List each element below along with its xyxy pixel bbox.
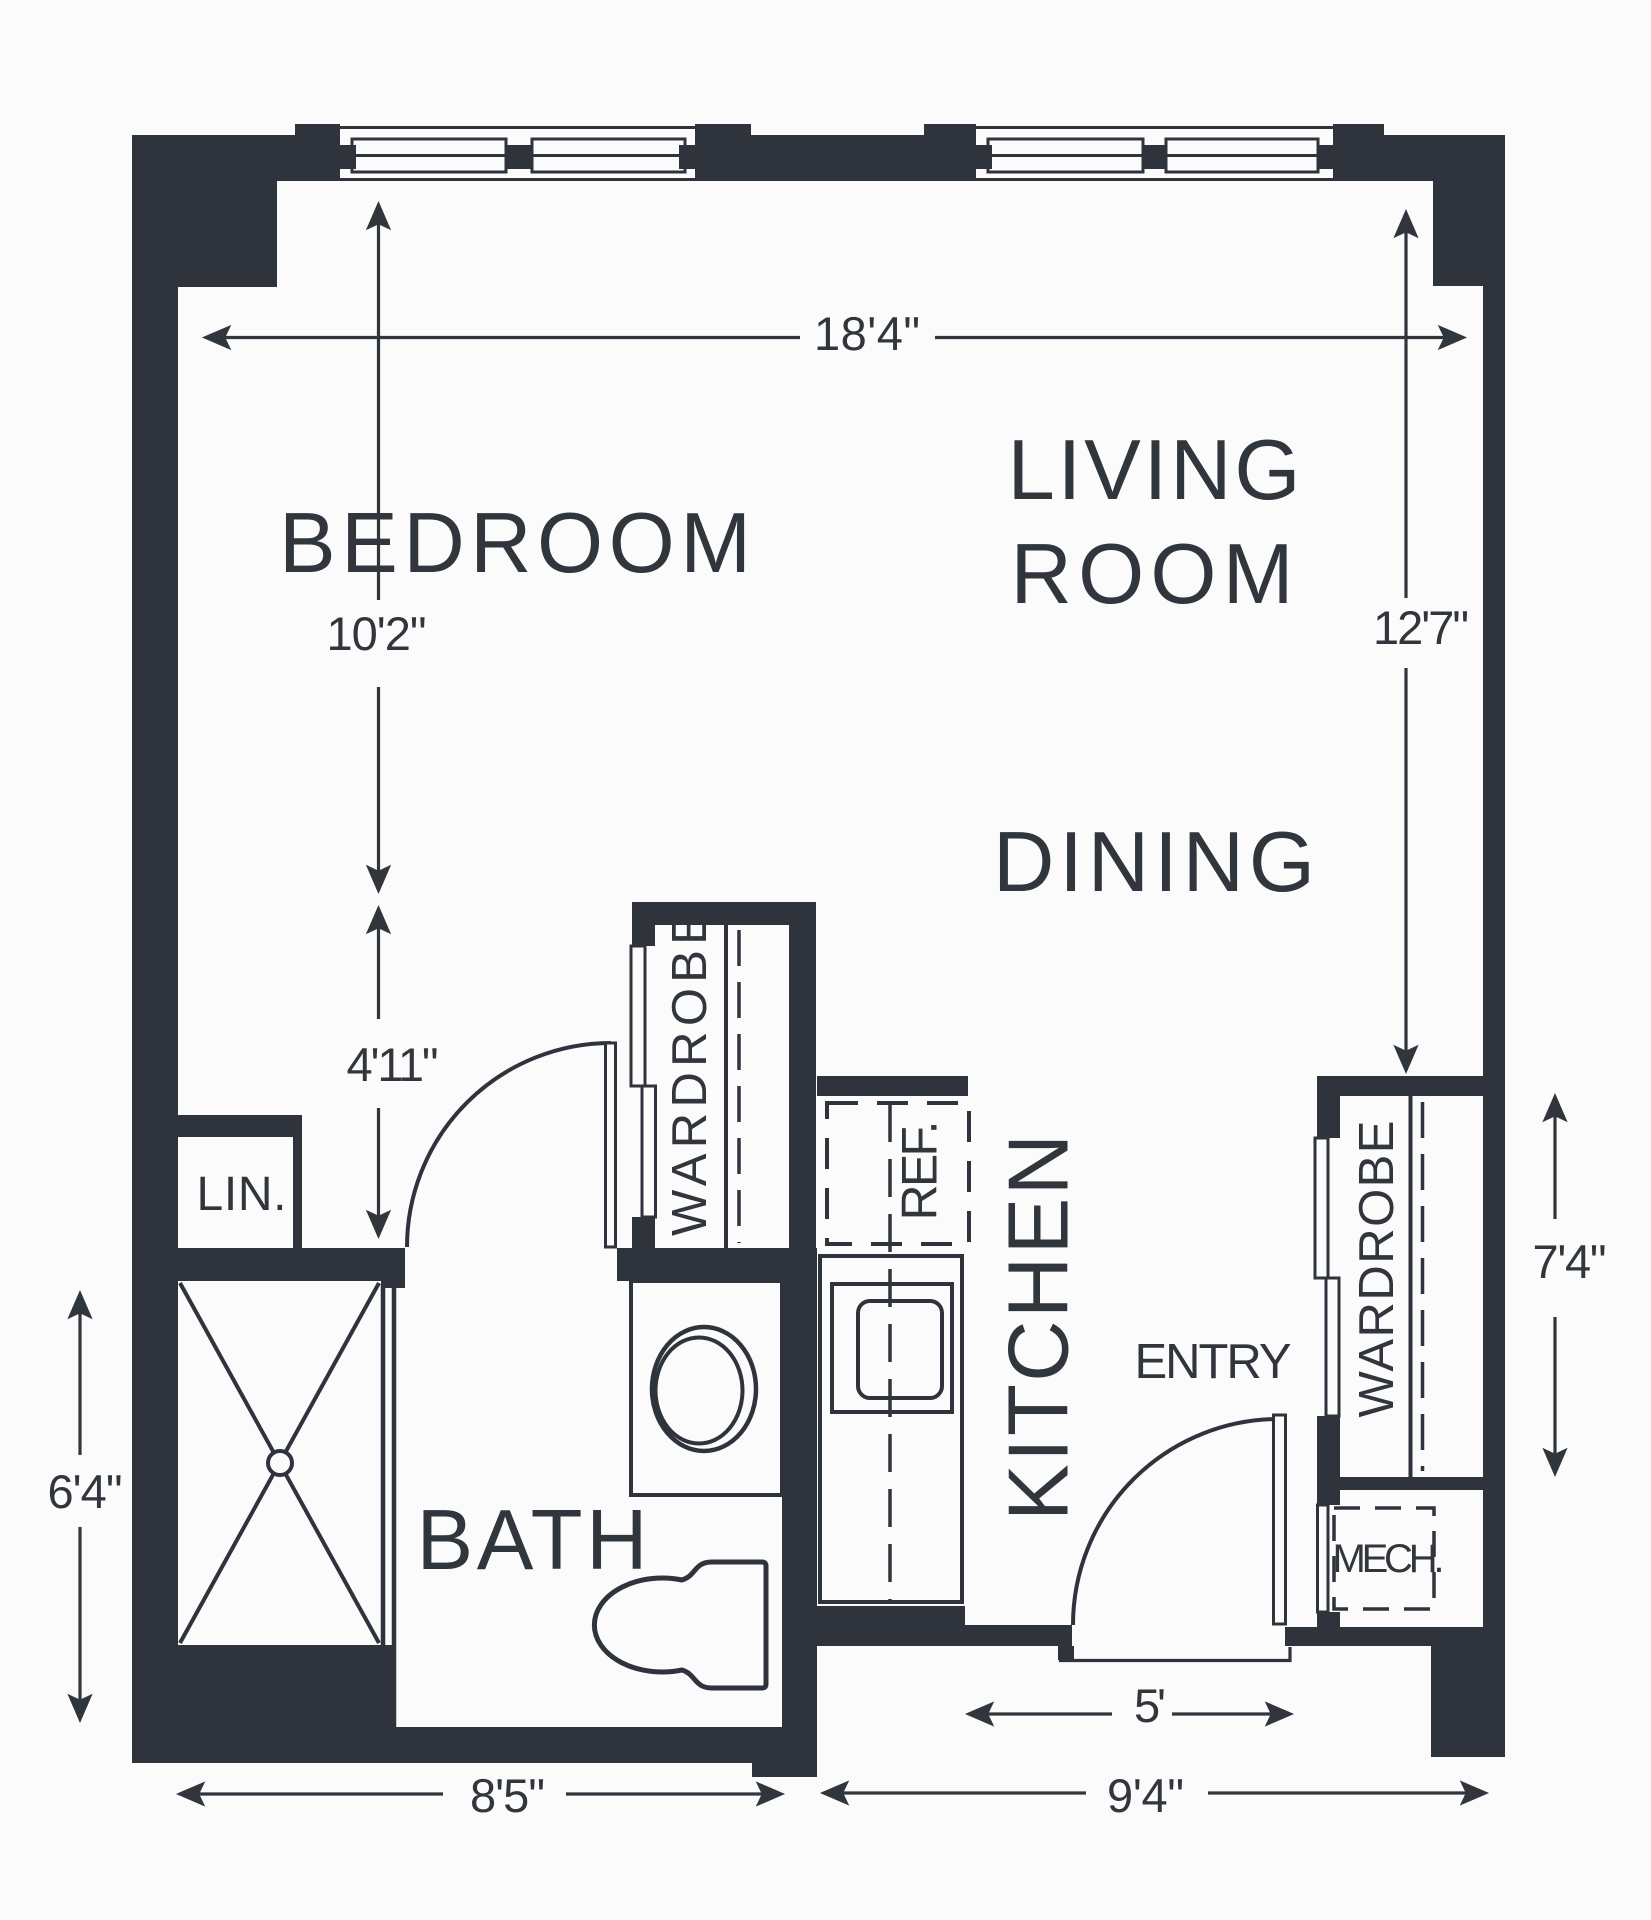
svg-text:10'2": 10'2" xyxy=(327,607,427,660)
svg-text:18'4": 18'4" xyxy=(814,307,920,360)
svg-text:9'4": 9'4" xyxy=(1107,1769,1184,1822)
svg-text:8'5": 8'5" xyxy=(470,1769,545,1822)
svg-text:5': 5' xyxy=(1134,1679,1166,1732)
svg-text:7'4": 7'4" xyxy=(1533,1235,1607,1288)
svg-text:12'7": 12'7" xyxy=(1373,601,1469,654)
svg-text:6'4": 6'4" xyxy=(48,1465,123,1518)
svg-text:BEDROOM: BEDROOM xyxy=(279,496,751,591)
svg-text:BATH: BATH xyxy=(417,1493,648,1588)
svg-text:LIVING: LIVING xyxy=(1008,423,1301,518)
svg-text:KITCHEN: KITCHEN xyxy=(992,1134,1087,1521)
svg-text:4'11": 4'11" xyxy=(347,1038,439,1091)
svg-text:ROOM: ROOM xyxy=(1011,527,1294,622)
svg-text:LIN.: LIN. xyxy=(197,1168,287,1221)
svg-text:DINING: DINING xyxy=(993,815,1315,910)
svg-text:MECH.: MECH. xyxy=(1333,1537,1445,1581)
svg-text:ENTRY: ENTRY xyxy=(1135,1335,1292,1389)
svg-text:REF.: REF. xyxy=(892,1121,948,1221)
